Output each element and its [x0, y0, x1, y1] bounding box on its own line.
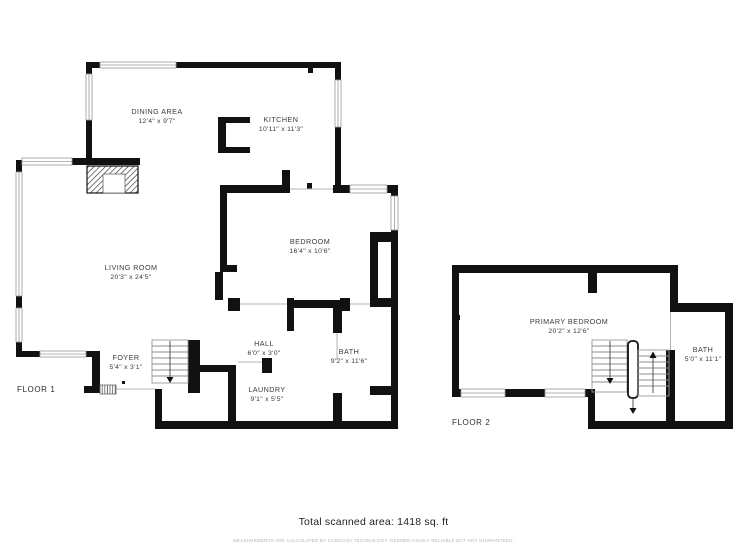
floorplan-page: DINING AREA 12'4" x 9'7" KITCHEN 10'11" … — [0, 0, 747, 560]
total-scanned-area: Total scanned area: 1418 sq. ft — [0, 516, 747, 528]
floor1-label: FLOOR 1 — [17, 385, 55, 394]
room-label-foyer: FOYER 5'4" x 3'1" — [109, 353, 142, 371]
room-name: PRIMARY BEDROOM — [530, 317, 608, 326]
stairs-floor1 — [152, 340, 188, 383]
room-label-bath-floor1: BATH 9'2" x 11'6" — [331, 347, 368, 365]
floor2-label: FLOOR 2 — [452, 418, 490, 427]
room-name: FOYER — [109, 353, 142, 362]
room-name: KITCHEN — [259, 115, 303, 124]
room-name: BATH — [685, 345, 722, 354]
fireplace — [87, 166, 138, 193]
room-label-living-room: LIVING ROOM 20'3" x 24'5" — [105, 263, 158, 281]
room-dims: 5'4" x 3'1" — [109, 364, 142, 371]
floor1-drawing — [16, 62, 398, 429]
room-label-laundry: LAUNDRY 9'1" x 5'5" — [248, 385, 285, 403]
room-dims: 5'0" x 11'1" — [685, 356, 722, 363]
room-name: LAUNDRY — [248, 385, 285, 394]
room-label-dining-area: DINING AREA 12'4" x 9'7" — [131, 107, 182, 125]
room-label-hall: HALL 6'0" x 3'0" — [247, 339, 280, 357]
room-dims: 6'0" x 3'0" — [247, 350, 280, 357]
room-name: BATH — [331, 347, 368, 356]
room-label-kitchen: KITCHEN 10'11" x 11'3" — [259, 115, 303, 133]
room-name: LIVING ROOM — [105, 263, 158, 272]
room-name: DINING AREA — [131, 107, 182, 116]
room-label-primary-bedroom: PRIMARY BEDROOM 20'2" x 12'6" — [530, 317, 608, 335]
room-dims: 9'1" x 5'5" — [248, 396, 285, 403]
room-dims: 12'4" x 9'7" — [131, 118, 182, 125]
disclaimer-text: MEASUREMENTS ARE CALCULATED BY CUBICASA … — [0, 538, 747, 543]
room-label-bath-floor2: BATH 5'0" x 11'1" — [685, 345, 722, 363]
room-label-bedroom: BEDROOM 16'4" x 10'6" — [289, 237, 330, 255]
room-name: BEDROOM — [289, 237, 330, 246]
room-name: HALL — [247, 339, 280, 348]
room-dims: 20'2" x 12'6" — [530, 328, 608, 335]
room-dims: 16'4" x 10'6" — [289, 248, 330, 255]
kitchen-counter — [218, 117, 250, 153]
room-dims: 9'2" x 11'6" — [331, 358, 368, 365]
entry-door — [100, 385, 116, 394]
room-dims: 10'11" x 11'3" — [259, 126, 303, 133]
stairs-floor2 — [592, 340, 669, 414]
room-dims: 20'3" x 24'5" — [105, 274, 158, 281]
